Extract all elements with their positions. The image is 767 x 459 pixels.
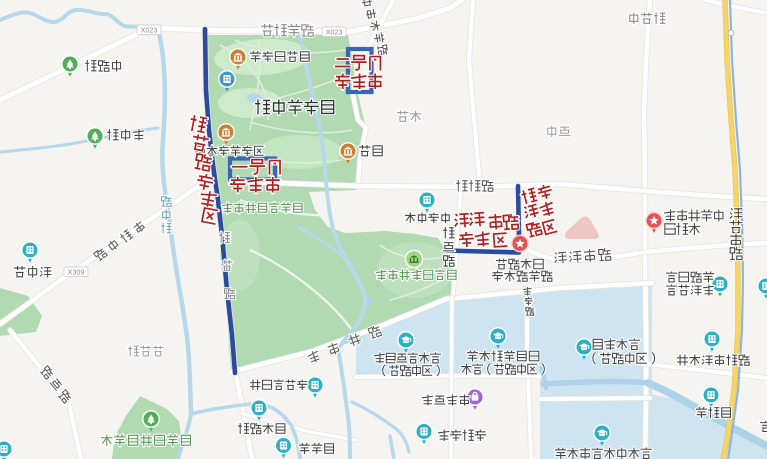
svg-text:X309: X309 bbox=[68, 268, 85, 277]
svg-text:X023: X023 bbox=[326, 28, 343, 37]
svg-text:X023: X023 bbox=[141, 26, 158, 35]
